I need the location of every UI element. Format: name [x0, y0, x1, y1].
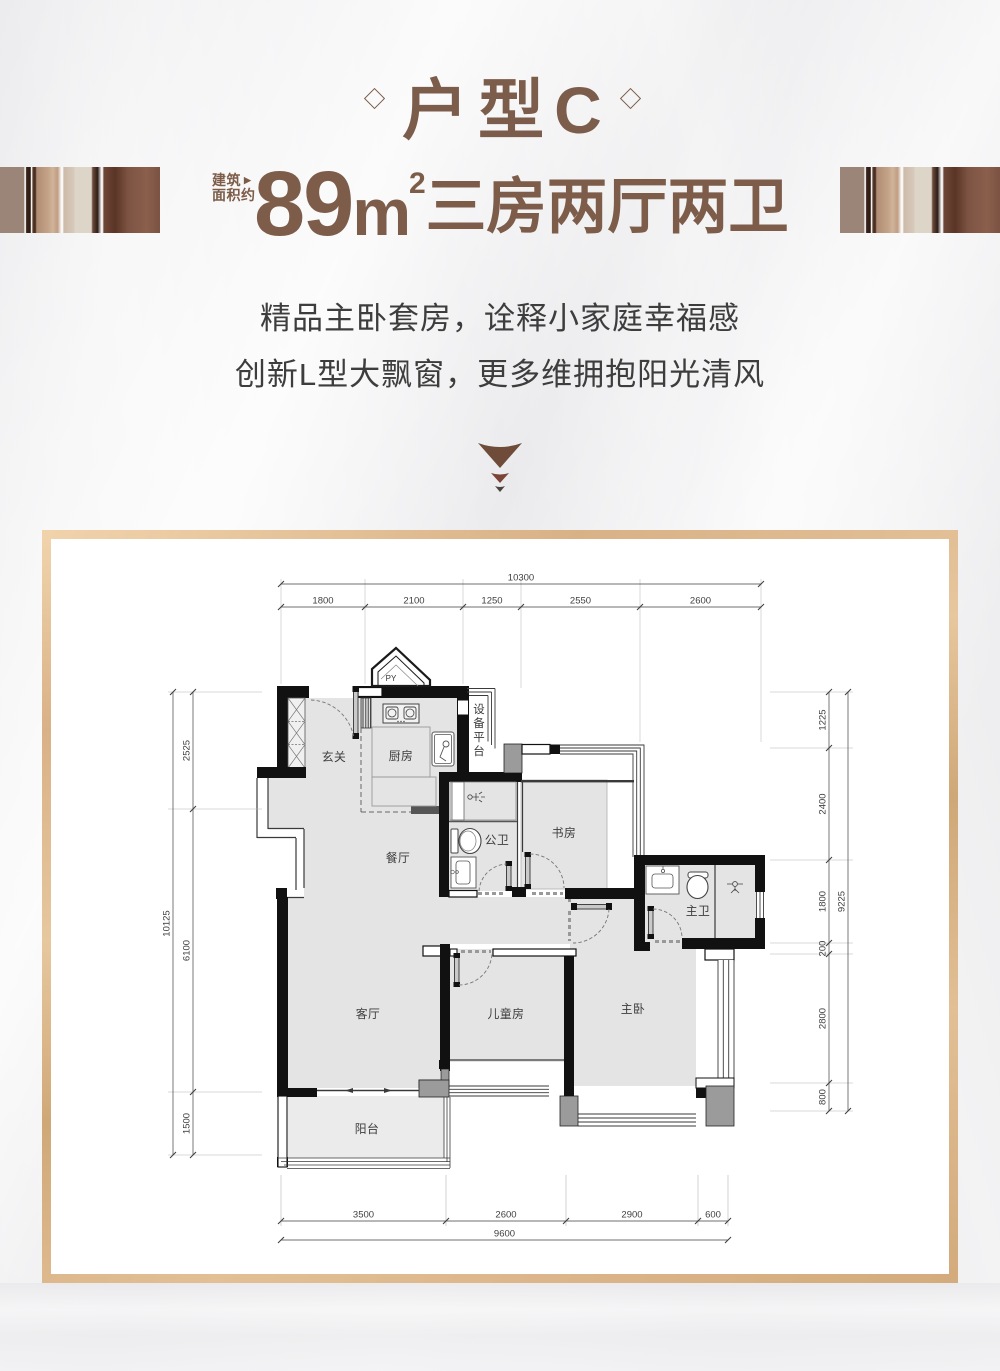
- svg-text:主卫: 主卫: [686, 904, 711, 918]
- svg-text:800: 800: [818, 1089, 829, 1105]
- svg-text:厨房: 厨房: [389, 749, 414, 763]
- svg-text:平: 平: [473, 732, 485, 744]
- svg-text:台: 台: [473, 744, 485, 758]
- svg-text:2400: 2400: [818, 793, 829, 814]
- svg-text:1800: 1800: [818, 891, 829, 912]
- svg-text:2600: 2600: [495, 1210, 516, 1221]
- svg-text:客厅: 客厅: [356, 1007, 381, 1021]
- svg-text:书房: 书房: [552, 826, 577, 840]
- svg-text:1800: 1800: [312, 596, 333, 607]
- svg-text:9225: 9225: [837, 891, 848, 912]
- svg-text:1225: 1225: [818, 709, 829, 730]
- svg-text:主卧: 主卧: [621, 1002, 646, 1016]
- svg-text:600: 600: [705, 1210, 721, 1221]
- svg-text:公卫: 公卫: [485, 833, 510, 847]
- svg-text:9600: 9600: [494, 1229, 515, 1240]
- svg-text:2900: 2900: [621, 1210, 642, 1221]
- svg-text:2800: 2800: [818, 1008, 829, 1029]
- svg-text:PY: PY: [386, 674, 397, 683]
- svg-text:餐厅: 餐厅: [386, 851, 411, 865]
- svg-text:200: 200: [818, 941, 829, 957]
- svg-text:2100: 2100: [403, 596, 424, 607]
- svg-text:2550: 2550: [570, 596, 591, 607]
- svg-text:6100: 6100: [182, 940, 193, 961]
- svg-text:1500: 1500: [182, 1113, 193, 1134]
- svg-text:阳台: 阳台: [355, 1122, 380, 1136]
- svg-text:10125: 10125: [162, 910, 173, 936]
- svg-text:10300: 10300: [508, 573, 534, 584]
- svg-text:3500: 3500: [353, 1210, 374, 1221]
- svg-text:玄关: 玄关: [322, 750, 347, 764]
- svg-text:1250: 1250: [481, 596, 502, 607]
- svg-text:2525: 2525: [182, 740, 193, 761]
- svg-text:儿童房: 儿童房: [488, 1007, 525, 1021]
- svg-text:2600: 2600: [690, 596, 711, 607]
- svg-text:设: 设: [473, 703, 485, 716]
- svg-text:备: 备: [473, 716, 485, 730]
